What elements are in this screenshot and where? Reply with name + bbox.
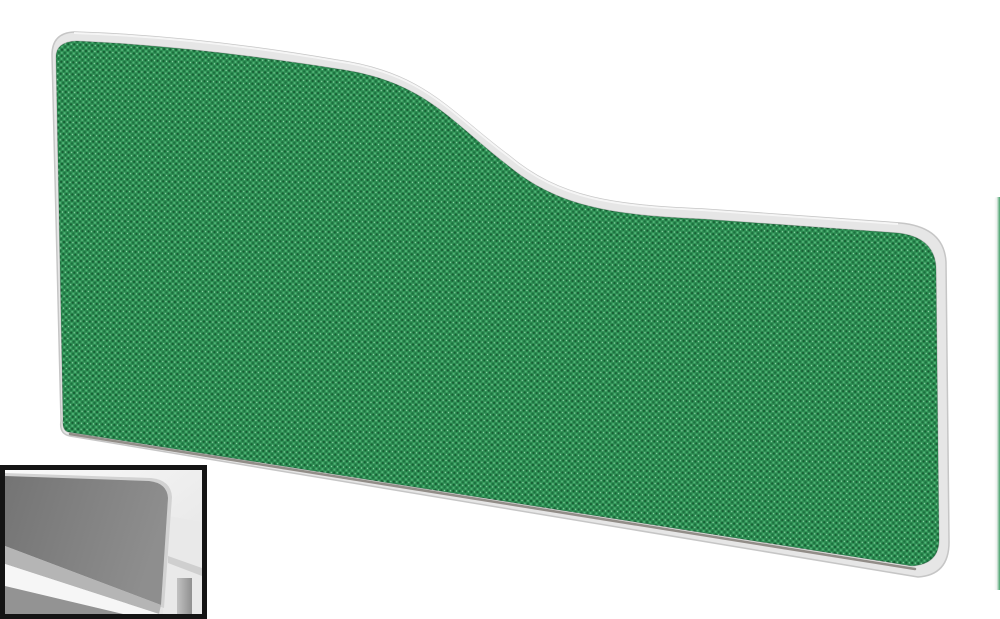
inset-desk-leg [177,578,192,614]
inset-context-thumbnail [0,465,207,619]
inset-desk-photo [5,470,202,614]
adjacent-image-edge [994,197,1000,590]
